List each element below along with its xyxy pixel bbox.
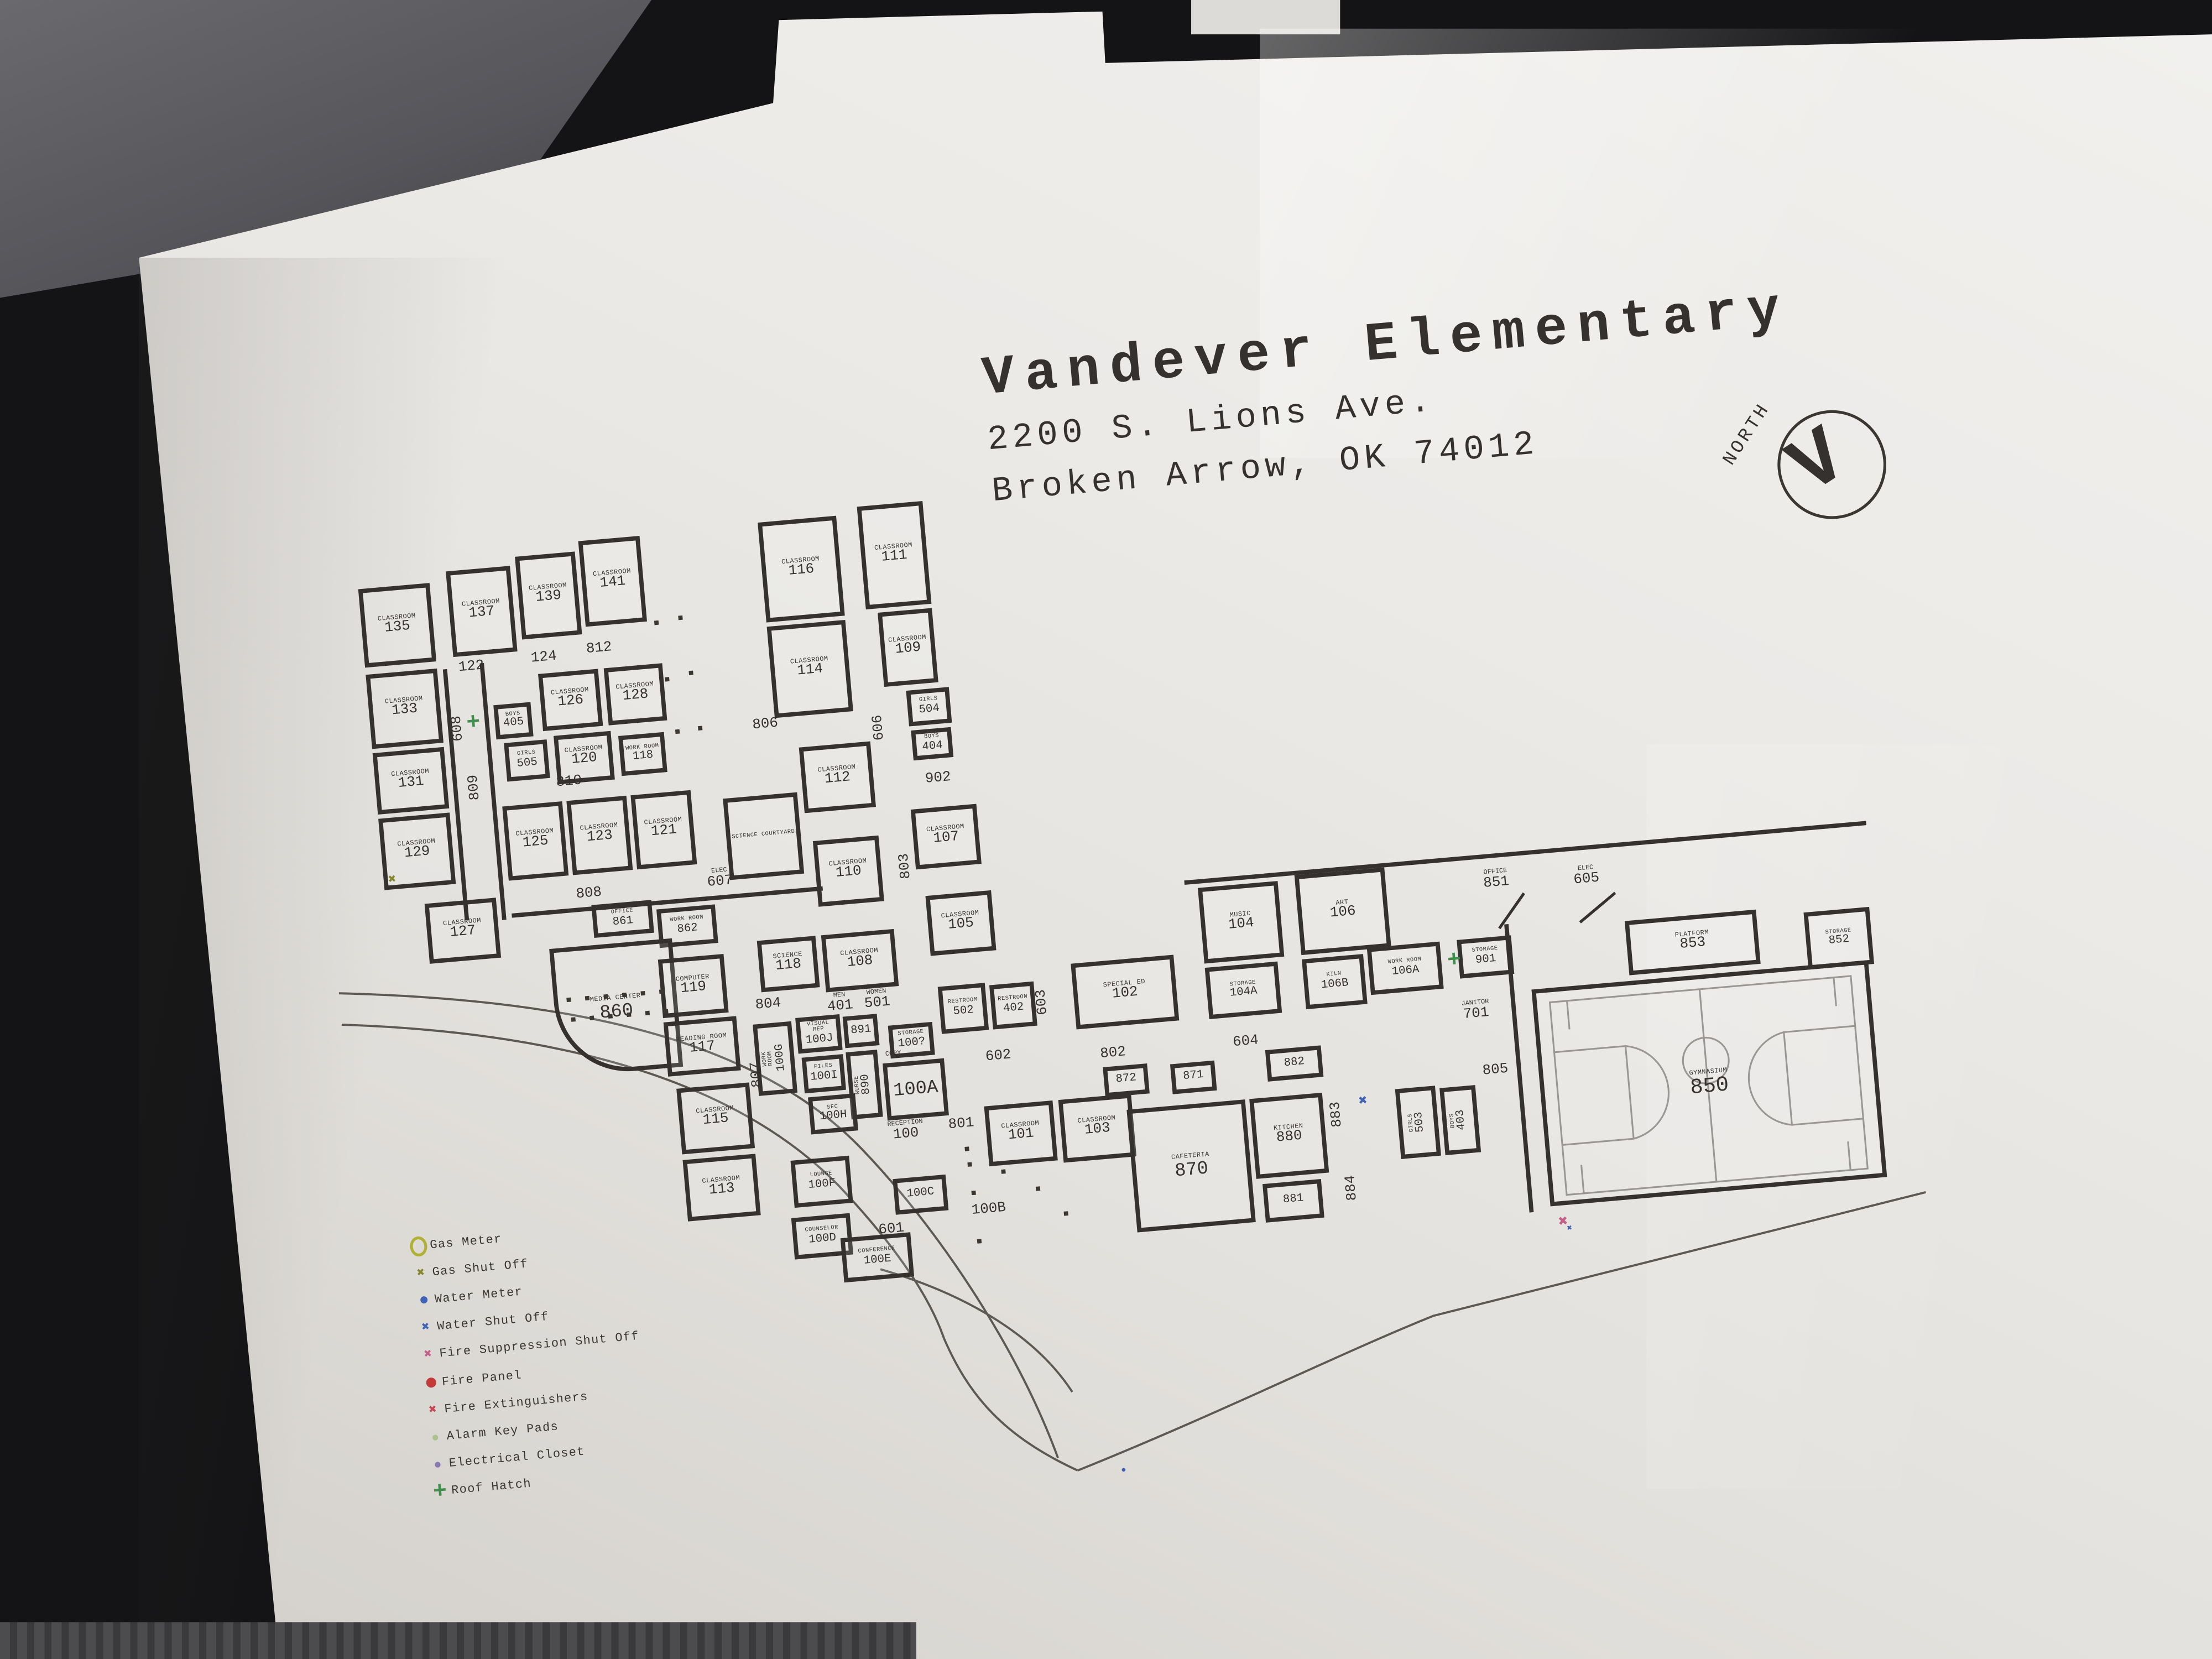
symbol-roof-hatch-icon: +: [1446, 948, 1462, 972]
label-text: 810: [556, 775, 583, 792]
dot-marker: [585, 996, 589, 1000]
room-117: READING ROOM117: [664, 1016, 741, 1077]
room-number: 121: [651, 825, 678, 842]
corridor-label-501: WOMEN501: [863, 989, 891, 1013]
dot-marker: [603, 994, 608, 999]
room-number: 861: [612, 915, 634, 929]
room-100C: 100C: [893, 1175, 948, 1215]
room-number: 104: [1228, 917, 1255, 935]
room-label: CLASSROOM131: [391, 768, 431, 794]
ring: [409, 1235, 428, 1257]
room-133: CLASSROOM133: [366, 669, 444, 749]
room-872: 872: [1103, 1063, 1150, 1097]
symbol-gas-shut-off-icon: ✖: [388, 874, 397, 888]
room-number: 860: [599, 1000, 634, 1022]
photo-of-floor-plan: Vandever Elementary 2200 S. Lions Ave. B…: [0, 0, 2212, 1659]
room-number: 404: [922, 740, 943, 754]
room-871: 871: [1170, 1061, 1217, 1094]
legend-symbol-plus-icon: +: [427, 1478, 452, 1506]
label-text: 806: [752, 718, 779, 734]
room-107: CLASSROOM107: [911, 804, 982, 870]
symbol-water-shut-off-icon: ✖: [1358, 1096, 1368, 1111]
room-label: CLASSROOM127: [443, 918, 483, 943]
dot-marker: [698, 726, 702, 731]
corridor-label-809: 809: [468, 774, 484, 801]
room-number: 505: [517, 757, 538, 771]
room-label: GIRLS503: [1408, 1112, 1428, 1134]
room-number: 502: [953, 1005, 974, 1019]
room-label: CLASSROOM101: [1001, 1120, 1041, 1146]
label-text: 884: [1345, 1174, 1361, 1201]
sidewalk-line: [944, 1328, 1078, 1481]
room-number: 127: [450, 926, 477, 943]
room-number: 503: [1415, 1112, 1428, 1133]
label-text: 812: [586, 642, 613, 659]
corridor-label-810: 810: [556, 775, 583, 792]
corridor-label-606: 606: [872, 714, 889, 741]
room-123: CLASSROOM123: [566, 796, 633, 875]
room-number: 107: [933, 832, 960, 849]
room-number: 104A: [1229, 987, 1258, 1001]
room-label: CLASSROOM116: [781, 556, 821, 582]
room-label: MEDIA CENTER860: [589, 992, 643, 1023]
corridor-label-COPY: COPY: [885, 1051, 901, 1059]
dot: [419, 1297, 427, 1305]
dot-marker: [977, 1239, 982, 1243]
room-label: STORAGE104A: [1229, 980, 1258, 1000]
dot: [435, 1462, 441, 1468]
label-text: 601: [878, 1223, 905, 1239]
corridor-label-608: 608: [451, 715, 468, 742]
label-text: 883: [1330, 1101, 1347, 1128]
room-135: CLASSROOM135: [358, 583, 436, 667]
room-label: WORK ROOM118: [625, 743, 660, 764]
label-text: 902: [925, 771, 952, 788]
room-label: ART106: [1329, 899, 1357, 924]
room-115: CLASSROOM115: [676, 1082, 755, 1154]
room-882: 882: [1265, 1045, 1324, 1082]
corridor-label-808: 808: [576, 887, 603, 904]
room-100H: SEC100H: [808, 1093, 858, 1135]
room-label: WORK ROOM106A: [1388, 958, 1423, 979]
legend-label: Alarm Key Pads: [446, 1420, 560, 1443]
room-label: CLASSROOM137: [462, 599, 502, 624]
room-label: VISUAL REP100J: [800, 1020, 838, 1048]
room-number: 850: [1689, 1074, 1730, 1100]
room-number: 128: [622, 689, 649, 706]
room-number: 113: [708, 1182, 735, 1199]
room-label: 871: [1183, 1071, 1204, 1084]
room-number: 880: [1276, 1131, 1303, 1148]
symbol-water-shut-off-icon: ✖: [1567, 1224, 1573, 1233]
room-number: 126: [557, 695, 585, 712]
label-text: 501: [864, 996, 891, 1013]
room-number: 403: [1457, 1109, 1470, 1131]
label-text: 851: [1483, 875, 1510, 892]
legend-label: Fire Panel: [441, 1368, 523, 1389]
room-number: 105: [948, 918, 975, 935]
room-109: CLASSROOM109: [878, 608, 938, 687]
legend-symbol-dot-icon: [424, 1433, 447, 1441]
room-104: MUSIC104: [1198, 881, 1284, 963]
dot-marker: [608, 1014, 613, 1019]
corridor-label-603: 603: [1036, 989, 1052, 1016]
room-number: 100D: [808, 1232, 837, 1246]
room-number: 890: [860, 1073, 874, 1095]
room-label: RESTROOM402: [998, 995, 1029, 1016]
room-141: CLASSROOM141: [578, 536, 647, 627]
corridor-label-100: RECEPTION100: [887, 1120, 924, 1144]
room-100I: FILES100I: [802, 1054, 846, 1093]
room-label: RESTROOM502: [948, 998, 979, 1019]
room-number: 405: [503, 717, 524, 731]
legend-symbol-ring-icon: [406, 1235, 431, 1257]
room-number: 141: [599, 576, 627, 593]
corridor-label-607: ELEC607: [706, 868, 734, 891]
room-891: 891: [843, 1014, 880, 1048]
dot-marker: [622, 993, 627, 997]
room-label: NURSE890: [854, 1073, 874, 1095]
room-number: 852: [1828, 935, 1850, 948]
room-label: CLASSROOM109: [888, 635, 928, 660]
room-number: 106B: [1321, 978, 1349, 992]
room-number: 100E: [863, 1253, 891, 1267]
dot-marker: [640, 991, 645, 995]
room-119: COMPUTER119: [658, 954, 729, 1018]
corridor-label-851: OFFICE851: [1482, 869, 1510, 892]
dot-marker: [654, 620, 659, 625]
room-label: CLASSROOM126: [551, 687, 591, 713]
room-number: 106: [1329, 906, 1357, 924]
room-number: 891: [851, 1024, 872, 1038]
room-number: 862: [677, 922, 698, 936]
room-405: BOYS405: [493, 702, 533, 740]
room-label: GYMNASIUM850: [1689, 1067, 1730, 1100]
room-853: PLATFORM853: [1625, 910, 1761, 975]
room-label: 882: [1284, 1057, 1305, 1071]
corridor-label-604: 604: [1233, 1035, 1260, 1052]
table-edge: [0, 1622, 916, 1659]
room-label: SCIENCE118: [773, 952, 804, 977]
dot: [425, 1378, 436, 1389]
room-121: CLASSROOM121: [630, 790, 697, 870]
room-label: CLASSROOM128: [615, 681, 655, 707]
room-label: CLASSROOM110: [828, 858, 868, 884]
room-number: 100C: [906, 1187, 935, 1202]
room-number: 100I: [810, 1070, 838, 1084]
label-text: COPY: [885, 1051, 901, 1059]
label-text: 607: [707, 874, 734, 891]
label-text: 606: [872, 714, 889, 741]
room-127: CLASSROOM127: [425, 898, 501, 964]
legend-symbol-dot-icon: [419, 1377, 442, 1389]
room-label: CONFERENCE100E: [858, 1246, 896, 1268]
room-number: 901: [1475, 953, 1496, 967]
corridor-label-701: JANITOR701: [1461, 1000, 1490, 1023]
corridor-label-605: ELEC605: [1573, 865, 1600, 889]
room-science-courtyard: SCIENCE COURTYARD: [723, 792, 804, 880]
symbol-water-meter-icon: ●: [1121, 1466, 1127, 1475]
legend-symbol-x-icon: ✖: [421, 1402, 445, 1418]
room-label: CLASSROOM129: [397, 838, 437, 864]
room-label: SCIENCE COURTYARD: [732, 830, 795, 842]
room-label: CLASSROOM112: [817, 764, 857, 790]
room-106A: WORK ROOM106A: [1367, 942, 1444, 995]
corridor-label-602: 602: [985, 1050, 1012, 1066]
room-label: BOYS404: [921, 734, 943, 754]
room-106B: KILN106B: [1302, 954, 1368, 1009]
room-number: 114: [797, 664, 824, 681]
room-label: 872: [1115, 1073, 1137, 1087]
room-number: 116: [788, 564, 815, 581]
room-number: 115: [702, 1113, 729, 1130]
room-number: 133: [392, 704, 419, 721]
room-number: 119: [680, 981, 707, 998]
room-label: CLASSROOM123: [580, 823, 619, 848]
label-text: 807: [750, 1061, 767, 1088]
room-label: BOYS403: [1451, 1109, 1470, 1131]
room-label: CLASSROOM107: [926, 824, 966, 849]
room-125: CLASSROOM125: [502, 801, 568, 881]
room-number: 118: [632, 750, 654, 764]
corridor-label-124: 124: [530, 651, 557, 667]
room-106: ART106: [1295, 867, 1391, 955]
dot-marker: [688, 671, 693, 675]
room-number: 853: [1679, 937, 1707, 954]
room-112: CLASSROOM112: [799, 742, 876, 813]
dot-marker: [589, 1015, 594, 1020]
room-number: 129: [404, 846, 431, 863]
room-number: 108: [847, 956, 874, 973]
room-number: 106A: [1391, 964, 1420, 979]
room-label: BOYS405: [502, 711, 524, 731]
room-label: CLASSROOM120: [564, 745, 604, 770]
legend-symbol-x-icon: ✖: [409, 1265, 433, 1281]
corridor-label-806: 806: [752, 718, 779, 734]
room-503: GIRLS503: [1395, 1086, 1441, 1159]
room-label: CLASSROOM121: [644, 817, 684, 842]
room-label: CLASSROOM113: [702, 1175, 742, 1200]
sidewalk-line: [1060, 1192, 1944, 1470]
room-104A: STORAGE104A: [1205, 962, 1282, 1019]
room-404: BOYS404: [911, 727, 953, 760]
room-label: WORK ROOM862: [670, 916, 705, 937]
legend-label: Roof Hatch: [451, 1477, 532, 1498]
room-label: CLASSROOM139: [529, 583, 568, 608]
room-label: PLATFORM853: [1675, 930, 1711, 954]
legend: Gas Meter✖Gas Shut OffWater Meter✖Water …: [406, 1201, 801, 1507]
room-label: CLASSROOM108: [840, 948, 880, 973]
room-label: GIRLS504: [918, 697, 940, 717]
dot: [432, 1434, 439, 1441]
room-number: 100?: [898, 1036, 926, 1051]
room-number: 504: [919, 703, 940, 717]
room-number: 112: [824, 772, 851, 789]
room-137: CLASSROOM137: [446, 566, 518, 657]
room-880: KITCHEN880: [1249, 1093, 1329, 1179]
room-label: WORK ROOM100G: [761, 1042, 789, 1074]
room-label: STORAGE100?: [897, 1030, 926, 1050]
label-text: 608: [451, 715, 468, 742]
dot-marker: [566, 998, 571, 1002]
label-text: 804: [755, 998, 782, 1014]
label-text: 805: [1482, 1063, 1509, 1080]
room-139: CLASSROOM139: [515, 551, 582, 639]
label-text: 801: [948, 1118, 975, 1134]
room-label: COUNSELOR100D: [805, 1225, 839, 1246]
room-number: 125: [522, 836, 549, 853]
room-label: 100A: [893, 1078, 939, 1101]
corridor-label-802: 802: [1100, 1047, 1127, 1063]
room-number: 100A: [893, 1078, 939, 1101]
room-label: SEC100H: [818, 1104, 847, 1124]
room-108: CLASSROOM108: [821, 929, 899, 993]
legend-label: Gas Meter: [429, 1232, 502, 1252]
dot-marker: [664, 1009, 668, 1014]
room-label: KILN106B: [1320, 971, 1349, 992]
corridor-label-884: 884: [1345, 1174, 1361, 1201]
room-128: CLASSROOM128: [604, 663, 667, 725]
label-text: 604: [1233, 1035, 1260, 1052]
room-label: CLASSROOM114: [790, 656, 830, 682]
room-number: 118: [775, 959, 802, 976]
room-label: CAFETERIA870: [1171, 1151, 1212, 1181]
legend-symbol-dot-icon: [411, 1296, 435, 1306]
corridor-label-601: 601: [878, 1223, 905, 1239]
room-881: 881: [1262, 1179, 1324, 1223]
legend-label: Water Meter: [434, 1285, 523, 1307]
room-102: SPECIAL ED102: [1071, 955, 1179, 1030]
corridor-label-801: 801: [948, 1118, 975, 1134]
room-number: 103: [1084, 1123, 1111, 1140]
label-text: 124: [530, 651, 557, 667]
room-number: 100F: [808, 1178, 836, 1192]
label-text: 701: [1462, 1006, 1490, 1023]
room-number: 100H: [819, 1110, 847, 1124]
dot-marker: [675, 729, 680, 734]
room-100F: LOUNGE100F: [790, 1156, 853, 1208]
room-number: 120: [571, 753, 598, 770]
dot-marker: [571, 1017, 576, 1021]
room-label: LOUNGE100F: [807, 1171, 836, 1192]
room-label: COMPUTER119: [675, 973, 711, 998]
room-number: 135: [384, 620, 411, 638]
dot-marker: [1063, 1211, 1068, 1215]
room-number: 117: [689, 1041, 716, 1058]
room-number: 871: [1183, 1071, 1204, 1084]
room-100J: VISUAL REP100J: [795, 1014, 843, 1053]
room-label: GIRLS505: [516, 750, 538, 770]
north-arrow: V NORTH: [1730, 373, 1901, 544]
room-118: WORK ROOM118: [618, 732, 667, 776]
label-text: 602: [985, 1050, 1012, 1066]
room-118: SCIENCE118: [757, 936, 820, 992]
room-label: FILES100I: [810, 1063, 838, 1084]
room-caption: SCIENCE COURTYARD: [732, 830, 795, 842]
corridor-label-902: 902: [925, 771, 952, 788]
design-root: Vandever Elementary 2200 S. Lions Ave. B…: [0, 0, 2212, 1659]
room-number: 109: [895, 643, 922, 660]
room-103: CLASSROOM103: [1058, 1094, 1136, 1163]
corridor-label-100B: 100B: [971, 1202, 1006, 1219]
dot-marker: [964, 1146, 969, 1151]
corridor-label-807: 807: [750, 1061, 767, 1088]
room-label: CLASSROOM135: [377, 613, 417, 638]
dot-marker: [627, 1013, 631, 1017]
room-label: MUSIC104: [1227, 910, 1255, 935]
room-label: CLASSROOM115: [696, 1105, 735, 1131]
label-text: 603: [1036, 989, 1052, 1016]
room-131: CLASSROOM131: [373, 747, 450, 815]
dot-marker: [967, 1162, 972, 1167]
room-105: CLASSROOM105: [925, 890, 996, 956]
room-label: 881: [1282, 1194, 1304, 1208]
room-number: 101: [1008, 1128, 1035, 1145]
room-label: OFFICE861: [611, 909, 635, 928]
room-505: GIRLS505: [504, 739, 550, 781]
room-number: 139: [535, 591, 562, 608]
room-label: CLASSROOM133: [385, 696, 425, 722]
dot-marker: [971, 1191, 975, 1195]
corridor-label-401: MEN401: [826, 993, 854, 1016]
corridor-label-803: 803: [899, 853, 915, 880]
room-114: CLASSROOM114: [767, 620, 853, 718]
label-text: 809: [468, 774, 484, 801]
corridor-label-883: 883: [1330, 1101, 1347, 1128]
room-label: KITCHEN880: [1274, 1123, 1305, 1148]
dot-marker: [659, 989, 664, 994]
room-number: 870: [1174, 1159, 1209, 1181]
legend-label: Gas Shut Off: [432, 1257, 529, 1280]
legend-label: Water Shut Off: [436, 1310, 550, 1334]
room-number: 100J: [805, 1033, 833, 1047]
room-label: 891: [851, 1024, 872, 1038]
room-111: CLASSROOM111: [857, 501, 932, 609]
corridor-label-804: 804: [755, 998, 782, 1014]
room-label: CLASSROOM103: [1077, 1115, 1117, 1141]
room-number: 137: [468, 607, 495, 624]
room-850: GYMNASIUM850: [1531, 960, 1887, 1206]
room-number: 131: [398, 776, 425, 793]
room-label: CLASSROOM125: [515, 828, 555, 854]
room-504: GIRLS504: [906, 687, 952, 726]
room-101: CLASSROOM101: [984, 1100, 1058, 1166]
legend-symbol-x-icon: ✖: [416, 1347, 440, 1363]
room-number: 882: [1284, 1057, 1305, 1071]
room-100A: 100A: [883, 1058, 949, 1121]
legend-symbol-dot-icon: [426, 1461, 449, 1469]
legend-symbol-x-icon: ✖: [414, 1320, 438, 1336]
room-126: CLASSROOM126: [538, 669, 603, 731]
dot-marker: [1001, 1169, 1005, 1173]
room-number: 111: [881, 550, 908, 567]
label-text: 100B: [971, 1202, 1006, 1219]
label-text: 808: [576, 887, 603, 904]
room-number: 102: [1112, 987, 1139, 1004]
room-label: 100C: [906, 1187, 935, 1202]
room-label: READING ROOM117: [676, 1033, 728, 1060]
room-label: CLASSROOM105: [941, 910, 980, 936]
room-label: CLASSROOM141: [593, 568, 633, 594]
room-label: SPECIAL ED102: [1103, 979, 1147, 1005]
dot-marker: [665, 677, 669, 681]
dot-marker: [1036, 1186, 1040, 1191]
room-502: RESTROOM502: [938, 983, 989, 1034]
room-label: CLASSROOM111: [874, 542, 914, 568]
room-number: 123: [586, 831, 613, 848]
label-text: 803: [899, 853, 915, 880]
room-label: STORAGE852: [1825, 928, 1853, 948]
